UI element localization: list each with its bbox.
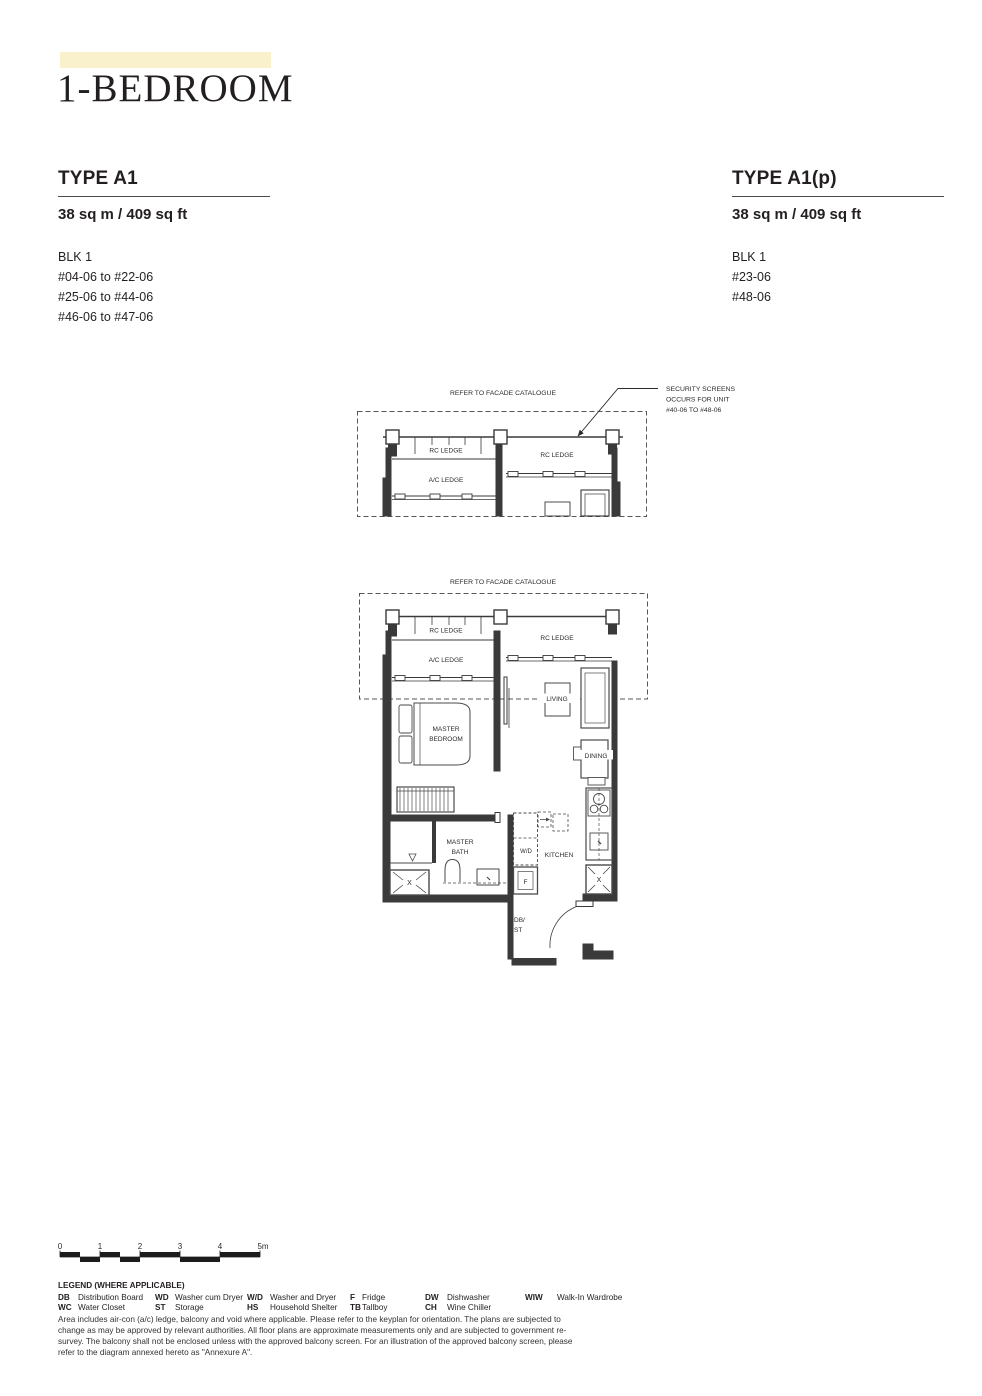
pillow (399, 705, 412, 733)
legend-abbr: WD (155, 1293, 175, 1304)
scale-segments (60, 1251, 260, 1263)
facade-rc-ledge-left-label: RC LEDGE (429, 448, 463, 455)
bed (414, 703, 470, 765)
legend-columns: DBDistribution Board WCWater Closet WDWa… (58, 1293, 678, 1317)
type-a1p-block-label: BLK 1 (732, 247, 944, 267)
legend-label: Washer and Dryer (270, 1293, 336, 1302)
legend-column: WDWasher cum Dryer STStorage (155, 1293, 243, 1314)
svg-text:SECURITY SCREENS: SECURITY SCREENS (666, 386, 735, 393)
master-bath-label-1: MASTER (446, 839, 473, 846)
floor-trap-icon (409, 854, 416, 861)
legend-column: W/DWasher and Dryer HSHousehold Shelter (247, 1293, 337, 1314)
floorplan-page: 1-BEDROOM TYPE A1 38 sq m / 409 sq ft BL… (0, 0, 982, 1396)
washer-dryer-box (514, 813, 538, 865)
legend-label: Walk-In Wardrobe (557, 1293, 622, 1302)
legend-abbr: DW (425, 1293, 447, 1304)
shaft-right-label: X (597, 877, 602, 884)
legend-label: Distribution Board (78, 1293, 143, 1302)
legend: LEGEND (WHERE APPLICABLE) DBDistribution… (58, 1281, 678, 1317)
svg-text:1: 1 (98, 1242, 103, 1251)
door-swing-arc (550, 907, 577, 949)
facade-caption: REFER TO FACADE CATALOGUE (450, 390, 556, 397)
scale-bar: 0 1 2 3 4 5m (56, 1240, 286, 1268)
legend-column: FFridge TBTallboy (350, 1293, 388, 1314)
rc-ledge-left-label: RC LEDGE (429, 628, 463, 635)
scale-ticks: 0 1 2 3 4 5m (58, 1242, 269, 1251)
master-bath-label-2: BATH (452, 849, 469, 856)
pillow (399, 736, 412, 763)
facade-structure (383, 430, 623, 516)
legend-label: Storage (175, 1303, 204, 1312)
type-a1p-name: TYPE A1(p) (732, 168, 944, 197)
svg-text:4: 4 (218, 1242, 223, 1251)
living-label: LIVING (546, 696, 567, 703)
washer-dryer-label: W/D (520, 849, 532, 855)
svg-text:5m: 5m (257, 1242, 268, 1251)
entrance-door (550, 901, 593, 948)
facade-rc-ledge-right-label: RC LEDGE (540, 452, 574, 459)
legend-label: Washer cum Dryer (175, 1293, 243, 1302)
svg-text:OCCURS FOR UNIT: OCCURS FOR UNIT (666, 397, 729, 404)
main-floor-plan: REFER TO FACADE CATALOGUE (350, 570, 660, 980)
svg-text:0: 0 (58, 1242, 63, 1251)
legend-abbr: WC (58, 1303, 78, 1314)
facade-diagram: REFER TO FACADE CATALOGUE SECURITY SCREE… (350, 378, 790, 535)
db-st-label-1: DB/ (514, 917, 525, 924)
rc-ledge-right-label: RC LEDGE (540, 635, 574, 642)
type-a1p-block: TYPE A1(p) 38 sq m / 409 sq ft BLK 1 #23… (732, 168, 944, 307)
svg-text:3: 3 (178, 1242, 183, 1251)
type-a1p-unit: #23-06 (732, 267, 944, 287)
legend-label: Dishwasher (447, 1293, 490, 1302)
wardrobe (397, 787, 454, 812)
svg-text:#40-06 TO #48-06: #40-06 TO #48-06 (666, 407, 722, 414)
legend-abbr: HS (247, 1303, 270, 1314)
legend-abbr: ST (155, 1303, 175, 1314)
fridge-label: F (524, 879, 528, 886)
facade-ac-ledge-label: A/C LEDGE (429, 477, 464, 484)
legend-label: Tallboy (362, 1303, 388, 1312)
legend-column: DBDistribution Board WCWater Closet (58, 1293, 143, 1314)
plan-caption: REFER TO FACADE CATALOGUE (450, 579, 556, 586)
dining-chair (588, 778, 605, 786)
svg-text:2: 2 (138, 1242, 143, 1251)
legend-label: Wine Chiller (447, 1303, 491, 1312)
legend-abbr: F (350, 1293, 362, 1304)
type-a1-unit-range: #25-06 to #44-06 (58, 287, 270, 307)
type-a1-name: TYPE A1 (58, 168, 270, 197)
legend-label: Fridge (362, 1293, 385, 1302)
legend-abbr: WIW (525, 1293, 557, 1304)
type-a1-unit-range: #46-06 to #47-06 (58, 307, 270, 327)
kitchen-label: KITCHEN (545, 852, 574, 859)
vanity-basin (477, 869, 499, 885)
type-a1p-area: 38 sq m / 409 sq ft (732, 206, 944, 223)
legend-abbr: DB (58, 1293, 78, 1304)
door-leaf (576, 901, 593, 907)
legend-abbr: CH (425, 1303, 447, 1314)
dining-label: DINING (585, 753, 608, 760)
legend-column: DWDishwasher CHWine Chiller (425, 1293, 491, 1314)
legend-column: WIWWalk-In Wardrobe (525, 1293, 622, 1304)
water-closet (445, 860, 460, 883)
disclaimer-text: Area includes air-con (a/c) ledge, balco… (58, 1314, 574, 1358)
counter-dashed (553, 814, 568, 831)
type-a1-block: TYPE A1 38 sq m / 409 sq ft BLK 1 #04-06… (58, 168, 270, 327)
legend-abbr: TB (350, 1303, 362, 1314)
master-bedroom-label-2: BEDROOM (429, 736, 463, 743)
ac-ledge-label: A/C LEDGE (429, 657, 464, 664)
type-a1p-units: BLK 1 #23-06 #48-06 (732, 247, 944, 307)
shaft-left-label: X (407, 880, 412, 887)
type-a1-block-label: BLK 1 (58, 247, 270, 267)
db-st-label-2: ST (514, 927, 522, 934)
page-title: 1-BEDROOM (57, 66, 294, 111)
master-bedroom-label-1: MASTER (432, 726, 459, 733)
type-a1-area: 38 sq m / 409 sq ft (58, 206, 270, 223)
type-a1-unit-range: #04-06 to #22-06 (58, 267, 270, 287)
legend-label: Water Closet (78, 1303, 125, 1312)
legend-label: Household Shelter (270, 1303, 337, 1312)
type-a1p-unit: #48-06 (732, 287, 944, 307)
plan-fixtures (390, 668, 612, 895)
type-a1-units: BLK 1 #04-06 to #22-06 #25-06 to #44-06 … (58, 247, 270, 327)
legend-abbr: W/D (247, 1293, 270, 1304)
legend-title: LEGEND (WHERE APPLICABLE) (58, 1281, 678, 1292)
